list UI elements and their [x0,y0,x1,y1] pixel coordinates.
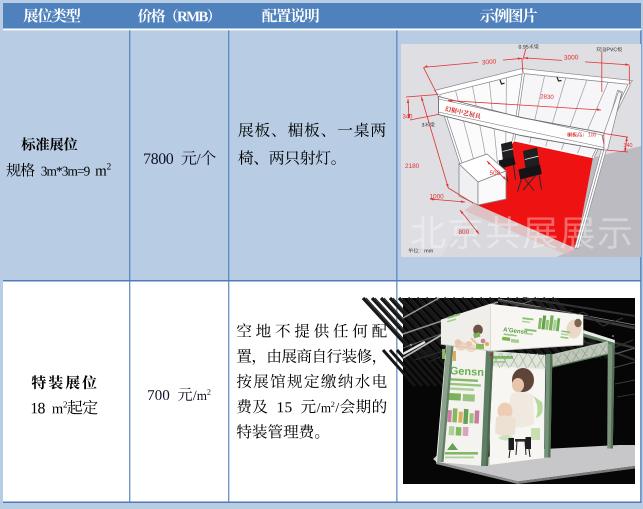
svg-text:340: 340 [624,143,633,149]
svg-text:2180: 2180 [405,163,420,170]
svg-text:3000: 3000 [482,58,497,66]
svg-text:2830: 2830 [540,94,555,102]
svg-text:100: 100 [588,133,597,139]
svg-text:3000: 3000 [564,54,579,62]
svg-text:340: 340 [403,115,414,121]
svg-text:'Gensn: 'Gensn [447,365,485,379]
svg-text:800: 800 [459,229,470,236]
svg-text:500: 500 [490,170,501,177]
svg-text:1000: 1000 [430,194,445,201]
